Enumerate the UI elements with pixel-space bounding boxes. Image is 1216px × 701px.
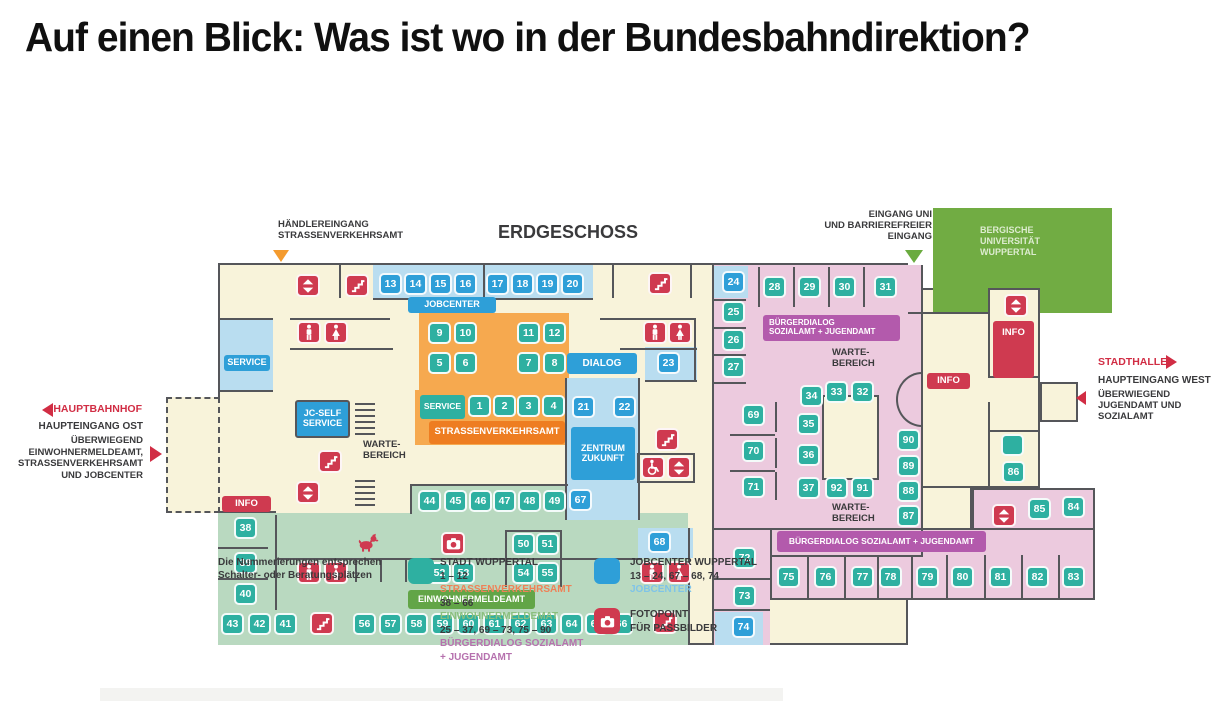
legend-stadt-title: STADT WUPPERTAL — [440, 556, 600, 570]
stairs-icon — [655, 428, 679, 451]
wall-segment — [908, 312, 988, 314]
wall-segment — [730, 470, 775, 472]
elevator-icon — [992, 504, 1016, 527]
wall-segment — [911, 555, 913, 600]
buergerdialog-label-upper: BÜRGERDIALOG SOZIALAMT + JUGENDAMT — [763, 315, 900, 341]
counter-box-3: 3 — [517, 395, 540, 417]
counter-box-49: 49 — [543, 490, 566, 512]
wall-segment — [713, 528, 770, 530]
legend-note: Die Nummerierungen entsprechen Schalter-… — [218, 556, 381, 582]
counter-box-41: 41 — [274, 613, 297, 635]
counter-box-87: 87 — [897, 505, 920, 527]
legend-stadt-range2: 38 – 66 — [440, 597, 600, 611]
wall-segment — [620, 348, 697, 350]
counter-box-69: 69 — [742, 404, 765, 426]
counter-box-46: 46 — [469, 490, 492, 512]
legend-stadt-range1: 1 – 12 — [440, 570, 600, 584]
infographic-page: Auf einen Blick: Was ist wo in der Bunde… — [0, 0, 1216, 701]
counter-box-33: 33 — [825, 381, 848, 403]
counter-box-blank — [1001, 434, 1024, 456]
counter-box-11: 11 — [517, 322, 540, 344]
counter-box-43: 43 — [221, 613, 244, 635]
counter-box-24: 24 — [722, 271, 745, 293]
stadthalle-label: STADTHALLE — [1098, 356, 1167, 368]
wall-segment — [410, 484, 412, 514]
wall-segment — [1058, 555, 1060, 600]
haupteingang-ost-label: HAUPTEINGANG OST — [20, 421, 143, 433]
legend-stadt-range3: 25 – 37, 69 – 73, 75 – 90 — [440, 624, 600, 638]
bench-rows — [355, 480, 375, 508]
counter-box-21: 21 — [572, 396, 595, 418]
counter-box-8: 8 — [543, 352, 566, 374]
stadthalle-arrow — [1166, 355, 1177, 369]
legend-jobcenter: JOBCENTER WUPPERTAL 13 – 24, 67 – 68, 74… — [630, 556, 790, 597]
counter-box-47: 47 — [493, 490, 516, 512]
counter-box-70: 70 — [742, 440, 765, 462]
wall-segment — [218, 547, 268, 549]
wall-segment — [690, 263, 692, 298]
counter-box-80: 80 — [951, 566, 974, 588]
wall-segment — [1021, 555, 1023, 600]
wing-left — [166, 397, 220, 513]
wc-m-icon — [643, 321, 667, 344]
wall-segment — [758, 267, 760, 307]
counter-box-77: 77 — [851, 566, 874, 588]
counter-box-51: 51 — [536, 533, 559, 555]
haupteingang-west-label: HAUPTEINGANG WEST — [1098, 375, 1211, 387]
wall-segment — [694, 318, 696, 380]
legend-stadt-dept1: STRASSENVERKEHRSAMT — [440, 583, 600, 597]
counter-box-35: 35 — [797, 413, 820, 435]
counter-box-92: 92 — [825, 477, 848, 499]
counter-box-19: 19 — [536, 273, 559, 295]
wall-segment — [775, 402, 777, 432]
counter-box-40: 40 — [234, 583, 257, 605]
info-label-mid: INFO — [927, 373, 970, 389]
wall-segment — [984, 555, 986, 600]
counter-box-57: 57 — [379, 613, 402, 635]
wall-segment — [290, 348, 393, 350]
erdgeschoss-title: ERDGESCHOSS — [498, 222, 638, 242]
entrance-uni-arrow — [905, 250, 923, 263]
counter-box-85: 85 — [1028, 498, 1051, 520]
zentrum-zukunft-label: ZENTRUM ZUKUNFT — [571, 427, 635, 480]
wall-segment — [988, 402, 990, 488]
legend-fotopoint-sub: FÜR PASSBILDER — [630, 622, 790, 636]
counter-box-68: 68 — [648, 531, 671, 553]
counter-box-9: 9 — [428, 322, 451, 344]
wall-segment — [220, 318, 273, 320]
wall-segment — [988, 488, 1040, 490]
counter-box-34: 34 — [800, 385, 823, 407]
wall-segment — [713, 382, 746, 384]
counter-box-56: 56 — [353, 613, 376, 635]
counter-box-67: 67 — [569, 489, 592, 511]
counter-box-58: 58 — [405, 613, 428, 635]
wall-segment — [290, 318, 390, 320]
elevator-icon — [667, 456, 691, 479]
haupteingang-west-sub: ÜBERWIEGEND JUGENDAMT UND SOZIALAMT — [1098, 389, 1181, 422]
wall-segment — [483, 263, 485, 301]
wall-segment — [730, 434, 775, 436]
wartebereich-lower: WARTE- BEREICH — [832, 503, 875, 524]
entrance-haendler-arrow — [273, 250, 289, 262]
info-label-left: INFO — [222, 496, 271, 512]
wall-segment — [807, 555, 809, 600]
uni-name: BERGISCHE UNIVERSITÄT WUPPERTAL — [980, 225, 1040, 258]
legend-fotopoint-title: FOTOPOINT — [630, 608, 790, 622]
wall-segment — [775, 438, 777, 468]
counter-box-42: 42 — [248, 613, 271, 635]
cropped-bottom-bar — [100, 688, 783, 701]
counter-box-27: 27 — [722, 356, 745, 378]
counter-box-20: 20 — [561, 273, 584, 295]
wall-segment — [505, 530, 562, 532]
wall-segment — [339, 263, 341, 298]
counter-box-5: 5 — [428, 352, 451, 374]
wall-segment — [863, 267, 865, 307]
wc-m-icon — [297, 321, 321, 344]
counter-box-30: 30 — [833, 276, 856, 298]
legend-swatch-stadt — [408, 558, 434, 584]
counter-box-78: 78 — [879, 566, 902, 588]
counter-box-6: 6 — [454, 352, 477, 374]
counter-box-23: 23 — [657, 352, 680, 374]
eingang-uni-label: EINGANG UNI UND BARRIEREFREIER EINGANG — [792, 209, 932, 242]
legend-stadt-dept2: EINWOHNERMELDEMAT — [440, 610, 600, 624]
elevator-icon — [1004, 294, 1028, 317]
haupteingang-west-arrow — [1076, 391, 1086, 405]
counter-box-4: 4 — [542, 395, 565, 417]
counter-box-16: 16 — [454, 273, 477, 295]
corridor-west — [1040, 382, 1078, 422]
wheelchair-icon — [641, 456, 665, 479]
counter-box-15: 15 — [429, 273, 452, 295]
wall-segment — [220, 390, 273, 392]
legend-stadt-dept3b: + JUGENDAMT — [440, 651, 600, 665]
hauptbahnhof-arrow — [42, 403, 53, 417]
counter-box-29: 29 — [798, 276, 821, 298]
counter-box-81: 81 — [989, 566, 1012, 588]
counter-box-17: 17 — [486, 273, 509, 295]
wall-segment — [775, 472, 777, 500]
strassenverkehrsamt-label: STRASSENVERKEHRSAMT — [429, 421, 565, 444]
counter-box-84: 84 — [1062, 496, 1085, 518]
legend-stadt: STADT WUPPERTAL 1 – 12 STRASSENVERKEHRSA… — [440, 556, 600, 664]
wartebereich-upper: WARTE- BEREICH — [832, 348, 875, 369]
floorplan: 1314151617181920242829303125262791011125… — [0, 100, 1216, 580]
jobcenter-label: JOBCENTER — [408, 297, 496, 313]
haupteingang-ost-sub: ÜBERWIEGEND EINWOHNERMELDEAMT, STRASSENV… — [18, 435, 143, 481]
wall-segment — [612, 263, 614, 298]
dialog-label: DIALOG — [567, 353, 637, 374]
counter-box-90: 90 — [897, 429, 920, 451]
counter-box-44: 44 — [418, 490, 441, 512]
counter-box-32: 32 — [851, 381, 874, 403]
wall-segment — [410, 484, 568, 486]
page-title: Auf einen Blick: Was ist wo in der Bunde… — [25, 14, 1030, 61]
wall-segment — [844, 555, 846, 600]
stairs-icon — [345, 274, 369, 297]
counter-box-88: 88 — [897, 480, 920, 502]
wartebereich-left: WARTE- BEREICH — [363, 440, 406, 461]
legend-jobcenter-range1: 13 – 24, 67 – 68, 74 — [630, 570, 790, 584]
counter-box-89: 89 — [897, 455, 920, 477]
counter-box-71: 71 — [742, 476, 765, 498]
counter-box-36: 36 — [797, 444, 820, 466]
courtyard-inner — [822, 395, 879, 480]
wall-segment — [946, 555, 948, 600]
counter-box-79: 79 — [916, 566, 939, 588]
stairs-icon — [310, 612, 334, 635]
counter-box-25: 25 — [722, 301, 745, 323]
info-label-right: INFO — [993, 321, 1034, 378]
counter-box-10: 10 — [454, 322, 477, 344]
hauptbahnhof-label: HAUPTBAHNHOF — [20, 403, 142, 415]
counter-box-22: 22 — [613, 396, 636, 418]
counter-box-91: 91 — [851, 477, 874, 499]
buergerdialog-label-lower: BÜRGERDIALOG SOZIALAMT + JUGENDAMT — [777, 531, 986, 552]
counter-box-37: 37 — [797, 477, 820, 499]
jcself-label: JC-SELF SERVICE — [295, 400, 350, 438]
counter-box-2: 2 — [493, 395, 516, 417]
bench-rows — [355, 403, 375, 437]
camera-icon — [441, 532, 465, 555]
service-teal-label: SERVICE — [420, 395, 465, 419]
wall-segment — [793, 267, 795, 307]
legend-stadt-dept3a: BÜRGERDIALOG SOZIALAMT — [440, 637, 600, 651]
wall-segment — [828, 267, 830, 307]
counter-box-18: 18 — [511, 273, 534, 295]
dog-icon — [357, 531, 379, 553]
haendlereingang-label: HÄNDLEREINGANG STRASSENVERKEHRSAMT — [278, 219, 403, 241]
wall-segment — [638, 378, 640, 520]
legend-fotopoint: FOTOPOINT FÜR PASSBILDER — [630, 608, 790, 635]
wall-segment — [600, 318, 695, 320]
haupteingang-ost-arrow — [150, 446, 162, 462]
legend-jobcenter-title: JOBCENTER WUPPERTAL — [630, 556, 790, 570]
wc-f-icon — [324, 321, 348, 344]
counter-box-14: 14 — [404, 273, 427, 295]
counter-box-82: 82 — [1026, 566, 1049, 588]
counter-box-86: 86 — [1002, 461, 1025, 483]
counter-box-83: 83 — [1062, 566, 1085, 588]
elevator-icon — [296, 274, 320, 297]
counter-box-31: 31 — [874, 276, 897, 298]
counter-box-1: 1 — [468, 395, 491, 417]
counter-box-50: 50 — [512, 533, 535, 555]
wall-segment — [988, 430, 1040, 432]
legend-jobcenter-dept1: JOBCENTER — [630, 583, 790, 597]
fotopoint-icon — [594, 608, 620, 634]
counter-box-7: 7 — [517, 352, 540, 374]
wc-f-icon — [668, 321, 692, 344]
counter-box-76: 76 — [814, 566, 837, 588]
legend-swatch-jobcenter — [594, 558, 620, 584]
counter-box-12: 12 — [543, 322, 566, 344]
stairs-icon — [318, 450, 342, 473]
service-strip-label: SERVICE — [224, 355, 270, 371]
wall-segment — [645, 380, 697, 382]
stairs-icon — [648, 272, 672, 295]
counter-box-26: 26 — [722, 329, 745, 351]
counter-box-28: 28 — [763, 276, 786, 298]
counter-box-48: 48 — [518, 490, 541, 512]
counter-box-13: 13 — [379, 273, 402, 295]
elevator-icon — [296, 481, 320, 504]
counter-box-45: 45 — [444, 490, 467, 512]
wall-segment — [405, 558, 407, 582]
counter-box-38: 38 — [234, 517, 257, 539]
